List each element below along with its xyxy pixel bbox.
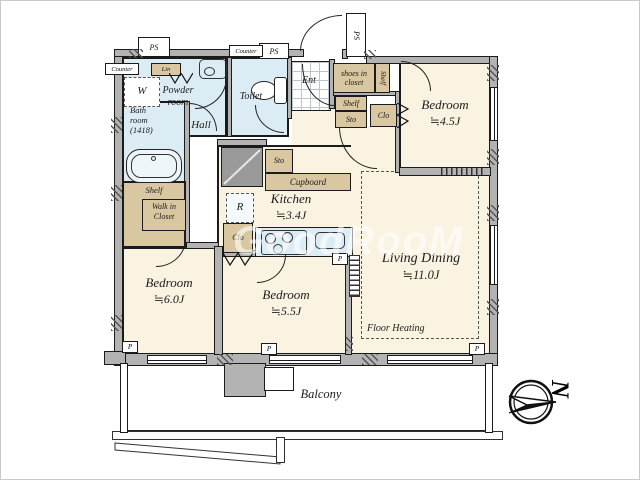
wall-hatch — [487, 65, 499, 81]
wall-hatch — [129, 49, 143, 58]
louver-strip — [441, 168, 483, 175]
pillar-marker: P — [261, 343, 277, 355]
toilet-tank — [274, 77, 287, 104]
shelf-label: Shelf — [343, 99, 359, 108]
pillar-marker: P — [332, 253, 348, 265]
stove-burner — [265, 233, 276, 244]
pillar-marker: P — [469, 343, 485, 355]
label-toilet: Toilet — [229, 91, 273, 103]
label-hall: Hall — [181, 119, 221, 132]
wall — [287, 57, 292, 119]
label-bedroom-2: Bedroom≒6.0J — [124, 275, 214, 306]
closet-box: Clo — [223, 223, 253, 253]
balcony-edge — [112, 439, 294, 469]
stove-burner — [282, 232, 293, 243]
wall — [217, 139, 267, 146]
pillar-label: P — [128, 343, 132, 351]
storage-label: Sto — [274, 156, 284, 165]
storage-box: Sto — [335, 111, 367, 128]
label-living-dining: Living Dining≒11.0J — [357, 251, 485, 285]
shelf-vertical: Shelf — [375, 63, 390, 93]
cupboard-label: Cupboard — [290, 177, 326, 187]
window — [147, 355, 207, 364]
bifold-door-icon — [169, 73, 193, 85]
bifold-door-icon — [223, 253, 253, 267]
wall-hatch — [111, 185, 122, 201]
window — [387, 355, 473, 364]
wall-hatch — [111, 117, 122, 133]
storage-label: Sto — [346, 115, 356, 124]
wall-hatch — [217, 354, 233, 365]
wall-hatch — [487, 205, 499, 221]
shelf-label: Shelf — [378, 71, 386, 85]
label-kitchen: Kitchen≒3.4J — [247, 191, 335, 222]
label-walk-in-closet: Walk inCloset — [142, 202, 186, 221]
pipe-space-shaft: PS — [346, 13, 366, 57]
stove-burner — [273, 244, 283, 254]
pillar-label: P — [267, 345, 271, 353]
pillar-label: P — [475, 345, 479, 353]
vanity-bowl — [204, 67, 215, 76]
pipe-space-label: PS — [150, 43, 159, 52]
label-bedroom-3: Bedroom≒5.5J — [235, 287, 337, 318]
wall — [224, 363, 266, 397]
counter-box: Counter — [229, 45, 263, 57]
wall-hatch — [487, 149, 499, 165]
pipe-space-box: PS — [259, 43, 289, 59]
washer-label: W — [137, 85, 146, 98]
pipe-space-label: PS — [270, 47, 279, 56]
label-bath-room: Bathroom(1418) — [124, 105, 176, 136]
duct-diagonal — [221, 147, 263, 187]
balcony-label: Balcony — [267, 387, 375, 402]
label-entrance: Ent — [289, 75, 329, 87]
floor-plan: Balcony PS PS PS Counter Counter Lin — [0, 0, 640, 480]
wall-hatch — [487, 299, 499, 315]
fridge-label: R — [237, 201, 244, 214]
wall-hatch — [364, 50, 376, 59]
closet-label: Clo — [378, 111, 390, 120]
balcony-side-wall — [485, 363, 493, 433]
storage-box: Sto — [265, 149, 293, 173]
sink-icon — [315, 232, 345, 249]
door-arc-entrance-outer — [300, 15, 342, 51]
window — [490, 225, 498, 285]
shoes-closet-label: shoes incloset — [341, 69, 367, 87]
shoes-closet: shoes incloset — [333, 63, 375, 93]
bathtub-drain — [151, 156, 156, 161]
label-bedroom-1: Bedroom≒4.5J — [401, 97, 489, 128]
pillar-marker: P — [122, 341, 138, 353]
compass-north-label: N — [545, 380, 573, 398]
window — [490, 87, 498, 141]
wall-hatch — [346, 337, 353, 351]
counter-label: Counter — [111, 66, 132, 73]
pipe-space-label: PS — [351, 31, 360, 40]
closet-box: Clo — [370, 104, 397, 127]
counter-label: Counter — [235, 48, 256, 55]
shelf-box: Shelf — [335, 96, 367, 111]
wall-hatch — [111, 315, 122, 331]
balcony-post — [276, 437, 285, 463]
counter-box: Counter — [105, 63, 139, 75]
wall-hatch — [362, 354, 378, 365]
window — [269, 355, 341, 364]
wall — [214, 246, 223, 355]
label-floor-heating: Floor Heating — [367, 323, 457, 335]
label-shelf-wic: Shelf — [122, 185, 186, 195]
pillar-label: P — [338, 255, 342, 263]
cupboard-box: Cupboard — [265, 173, 351, 191]
balcony-side-wall — [120, 363, 128, 433]
closet-label: Clo — [232, 233, 244, 242]
